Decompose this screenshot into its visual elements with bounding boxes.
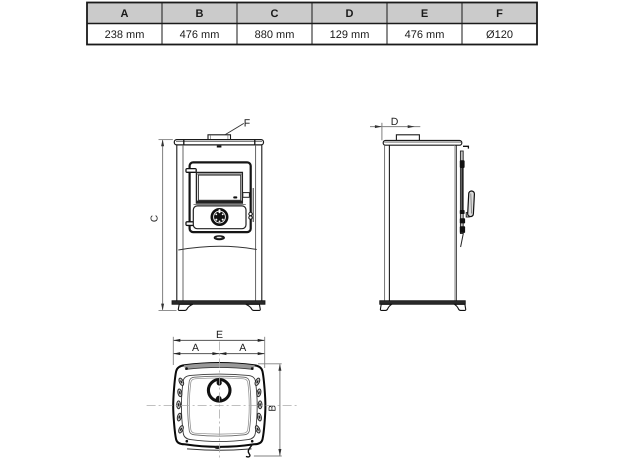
svg-text:A: A bbox=[192, 342, 199, 354]
svg-text:A: A bbox=[121, 8, 129, 20]
svg-text:238 mm: 238 mm bbox=[105, 29, 145, 41]
svg-text:E: E bbox=[216, 329, 223, 341]
svg-text:C: C bbox=[271, 8, 279, 20]
svg-text:476 mm: 476 mm bbox=[405, 29, 445, 41]
svg-text:F: F bbox=[244, 118, 250, 130]
svg-text:129 mm: 129 mm bbox=[330, 29, 370, 41]
svg-text:F: F bbox=[496, 8, 503, 20]
svg-text:D: D bbox=[346, 8, 354, 20]
svg-text:Ø120: Ø120 bbox=[486, 29, 513, 41]
svg-text:B: B bbox=[196, 8, 204, 20]
svg-text:C: C bbox=[150, 215, 161, 222]
svg-text:E: E bbox=[421, 8, 428, 20]
svg-text:D: D bbox=[391, 116, 399, 128]
svg-text:476 mm: 476 mm bbox=[180, 29, 220, 41]
svg-text:880 mm: 880 mm bbox=[255, 29, 295, 41]
svg-text:A: A bbox=[239, 342, 246, 354]
